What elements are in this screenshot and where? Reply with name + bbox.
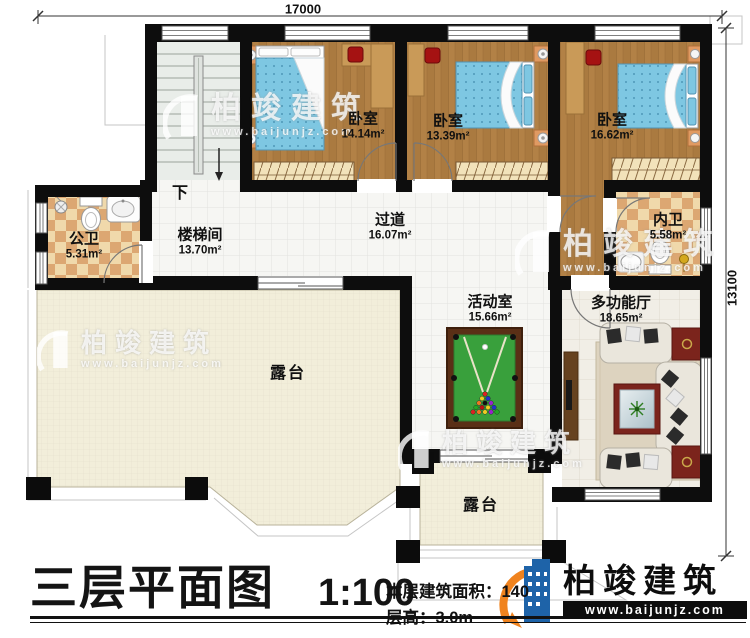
desk (408, 44, 424, 96)
dimension-right: 13100 (725, 270, 740, 306)
room-label-ensuite-bath: 内卫 5.58m² (650, 212, 686, 241)
desk (566, 42, 584, 114)
sliding-door (258, 277, 343, 289)
window (162, 26, 228, 40)
plan-title: 三层平面图 (30, 564, 275, 611)
floor-height-text: 层高：3.0m (386, 604, 473, 628)
dimension-top: 17000 (285, 2, 321, 17)
cue-ball (483, 345, 488, 350)
window (36, 252, 47, 284)
window (595, 26, 680, 40)
billiard-table (447, 328, 522, 428)
sink (621, 255, 641, 270)
pillow (606, 454, 622, 470)
brand-website: www.baijunjz.com (585, 604, 725, 617)
room-label-public-bath: 公卫 5.31m² (66, 231, 102, 260)
floorplan-canvas: 柏竣建筑 www.baijunjz.com 柏竣建筑 www.baijunjz.… (0, 0, 750, 638)
pillow (643, 328, 658, 343)
pillow (606, 328, 622, 344)
stair-direction-label: 下 (172, 179, 188, 203)
room-label-terrace-left: 露台 (270, 365, 306, 383)
window (701, 358, 711, 454)
window (448, 26, 528, 40)
chair (425, 48, 440, 63)
room-label-hallway: 过道 16.07m² (369, 212, 412, 241)
brand-name: 柏竣建筑 (563, 564, 723, 597)
room-label-bedroom-2: 卧室 13.39m² (427, 113, 470, 142)
pillow (625, 326, 640, 341)
room-label-multi-hall: 多功能厅 18.65m² (591, 295, 651, 324)
desk (371, 44, 393, 108)
room-label-activity-room: 活动室 15.66m² (467, 294, 512, 323)
room-label-terrace-bottom: 露台 (463, 497, 499, 515)
toilet-tank (80, 197, 102, 206)
chair (348, 47, 363, 62)
floor-area-text: 本层建筑面积：140 (386, 578, 529, 602)
pillow (625, 452, 640, 467)
tv (566, 380, 572, 410)
sliding-door (440, 450, 534, 462)
bed (256, 46, 324, 150)
chair (586, 50, 601, 65)
brand-url-bar: www.baijunjz.com (563, 601, 747, 619)
toilet-brush (680, 255, 689, 264)
side-table (672, 328, 702, 360)
room-label-bedroom-3: 卧室 16.62m² (591, 112, 634, 141)
window (36, 203, 47, 233)
toilet-tank (649, 265, 671, 274)
window (585, 489, 660, 500)
room-label-stairwell: 楼梯间 13.70m² (177, 227, 222, 256)
window (701, 208, 711, 264)
window (285, 26, 370, 40)
pillow (643, 454, 658, 469)
room-label-bedroom-1: 卧室 14.14m² (342, 111, 385, 140)
terrace-left-floor (37, 290, 400, 525)
side-table (672, 446, 702, 478)
